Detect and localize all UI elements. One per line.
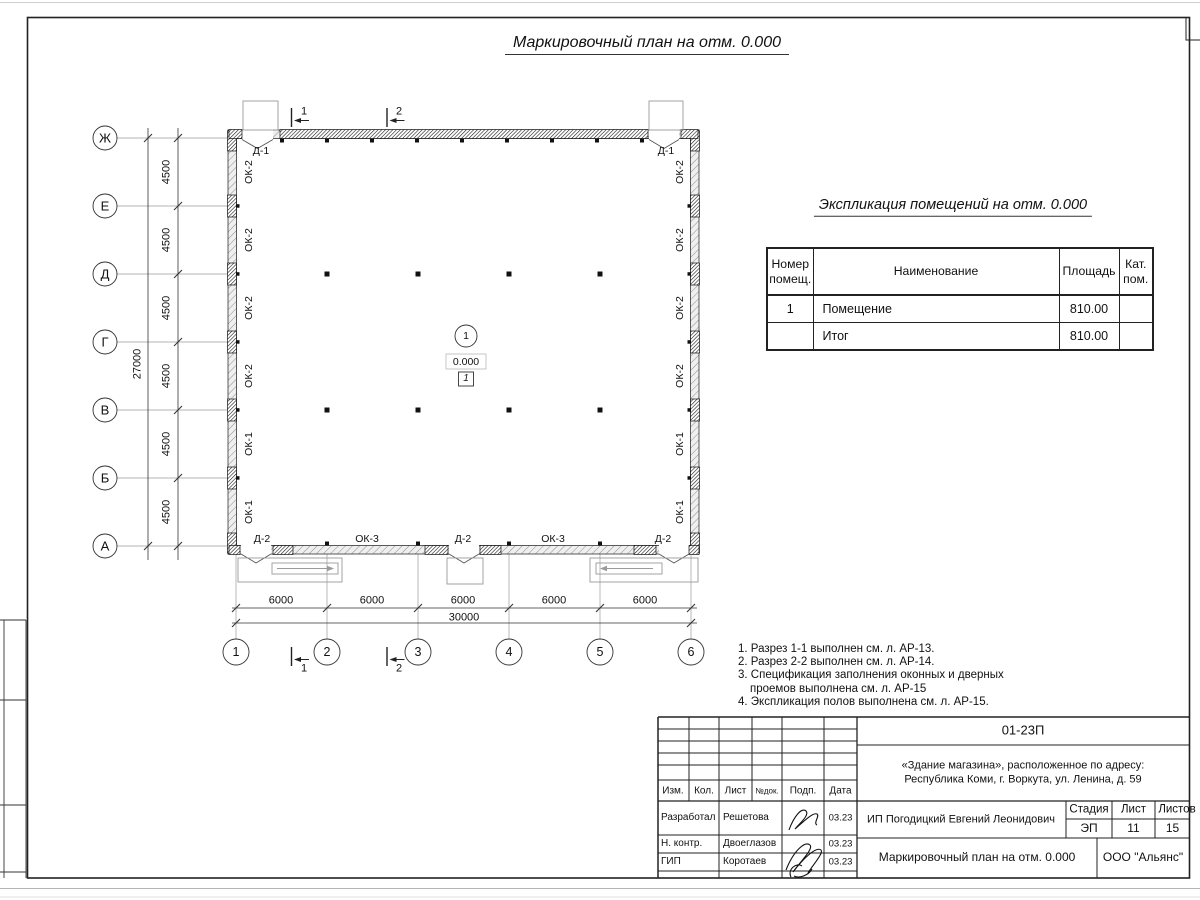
window-label-right-1: ОК-2 [675,228,686,252]
dim-col-total: 30000 [449,612,480,623]
bottom-label-2: Д-2 [455,534,471,545]
dim-col-1: 6000 [360,596,384,607]
axis-col-label-3: 3 [415,646,422,659]
tb-col-podp: Подп. [790,785,817,797]
note-line-0: 1. Разрез 1-1 выполнен см. л. АР-13. [738,643,1058,656]
cell-area: 810.00 [1059,295,1119,323]
cell-num: 1 [767,295,813,323]
tb-role-2: ГИП [661,857,681,867]
window-label-left-0: ОК-2 [244,160,255,184]
door-label-top-left: Д-1 [253,146,269,157]
cell-cat [1119,323,1153,351]
tb-object-line2: Республика Коми, г. Воркута, ул. Ленина,… [904,774,1141,787]
axis-row-label-zh: Ж [99,132,111,145]
dim-row-0: 4500 [162,160,173,184]
section-label-top-2: 2 [396,107,402,118]
axis-row-label-d: Д [101,268,110,281]
dim-col-2: 6000 [451,596,475,607]
grid-lines [117,138,691,639]
col-header-number: Номер помещ. [767,248,813,295]
tb-company: ООО "Альянс" [1103,851,1183,865]
tb-sheets-total: 15 [1166,822,1179,836]
tb-name-0: Решетова [723,813,769,823]
tb-date-2: 03.23 [829,857,853,868]
tb-col-list: Лист [725,785,747,797]
tb-col-izm: Изм. [662,785,683,797]
section-label-top-1: 1 [301,107,307,118]
window-label-left-3: ОК-2 [244,364,255,388]
window-label-left-2: ОК-2 [244,296,255,320]
cell-area: 810.00 [1059,323,1119,351]
axis-col-label-5: 5 [597,646,604,659]
axis-col-label-1: 1 [233,646,240,659]
col-header-name: Наименование [813,248,1059,295]
axis-col-label-2: 2 [324,646,331,659]
cell-name: Итог [813,323,1059,351]
cell-cat [1119,295,1153,323]
window-label-right-4: ОК-1 [675,432,686,456]
table-row: Итог 810.00 [767,323,1153,351]
window-label-right-0: ОК-2 [675,160,686,184]
room-elevation: 0.000 [453,356,479,367]
cell-name: Помещение [813,295,1059,323]
window-label-left-5: ОК-1 [244,500,255,524]
explication-table: Номер помещ. Наименование Площадь Кат. п… [766,247,1154,351]
window-label-right-5: ОК-1 [675,500,686,524]
signature-1 [789,810,818,830]
tb-object-line1: «Здание магазина», расположенное по адре… [902,760,1145,773]
dim-row-1: 4500 [162,228,173,252]
dim-row-3: 4500 [162,364,173,388]
bottom-label-0: Д-2 [254,534,270,545]
axis-row-label-v: В [101,404,110,417]
section-label-bottom-2: 2 [396,664,402,675]
notes-list: 1. Разрез 1-1 выполнен см. л. АР-13. 2. … [738,643,1058,709]
axis-col-label-4: 4 [506,646,513,659]
note-line-1: 2. Разрез 2-2 выполнен см. л. АР-14. [738,656,1058,669]
dim-row-2: 4500 [162,296,173,320]
signature-2 [786,844,821,877]
explication-header-row: Номер помещ. Наименование Площадь Кат. п… [767,248,1153,295]
tb-doc-title: Маркировочный план на отм. 0.000 [879,851,1076,865]
tb-client: ИП Погодицкий Евгений Леонидович [867,813,1055,826]
tb-sheet-label: Лист [1121,803,1146,816]
door-label-top-right: Д-1 [658,146,674,157]
window-label-left-4: ОК-1 [244,432,255,456]
tb-sheet-number: 11 [1127,822,1139,836]
dim-col-0: 6000 [269,596,293,607]
tb-date-0: 03.23 [829,813,853,824]
dim-col-4: 6000 [633,596,657,607]
dim-row-5: 4500 [162,500,173,524]
tb-project-code: 01-23П [1002,724,1045,739]
axis-col-label-6: 6 [688,646,695,659]
tb-stage-value: ЭП [1080,822,1097,836]
room-number: 1 [463,331,469,342]
axis-row-label-g: Г [101,336,108,349]
col-header-cat: Кат. пом. [1119,248,1153,295]
axis-row-label-a: А [101,540,110,553]
dim-row-4: 4500 [162,432,173,456]
tb-col-data: Дата [829,785,851,797]
col-header-area: Площадь [1059,248,1119,295]
axis-bubbles [93,126,704,665]
tb-sheets-label: Листов [1158,803,1195,816]
tb-col-dok: №док. [755,786,778,795]
floor-type-marker: 1 [463,374,469,384]
explication-title: Экспликация помещений на отм. 0.000 [814,198,1092,217]
tb-stage-label: Стадия [1069,803,1108,816]
side-stamp [0,620,26,878]
cell-num [767,323,813,351]
dim-col-3: 6000 [542,596,566,607]
sheet-title: Маркировочный план на отм. 0.000 [505,35,789,55]
table-row: 1 Помещение 810.00 [767,295,1153,323]
bottom-label-1: ОК-3 [355,534,379,545]
note-line-3: 4. Экспликация полов выполнена см. л. АР… [738,696,1058,709]
note-line-2: 3. Спецификация заполнения оконных и две… [738,669,1058,695]
drawing-sheet: Маркировочный план на отм. 0.000 Эксплик… [0,0,1200,900]
window-label-left-1: ОК-2 [244,228,255,252]
tb-date-1: 03.23 [829,839,853,850]
tb-role-0: Разработал [661,813,715,823]
window-label-right-2: ОК-2 [675,296,686,320]
axis-row-label-e: Е [101,200,110,213]
section-label-bottom-1: 1 [301,664,307,675]
tb-name-1: Двоеглазов [723,839,776,849]
tb-name-2: Коротаев [723,857,766,867]
tb-col-kol: Кол. [694,785,714,797]
dim-row-total: 27000 [133,349,144,380]
tb-role-1: Н. контр. [661,839,702,849]
bottom-label-3: ОК-3 [541,534,565,545]
bottom-label-4: Д-2 [655,534,671,545]
axis-row-label-b: Б [101,472,110,485]
door-leafs [241,140,689,564]
window-label-right-3: ОК-2 [675,364,686,388]
signatures [786,810,821,877]
